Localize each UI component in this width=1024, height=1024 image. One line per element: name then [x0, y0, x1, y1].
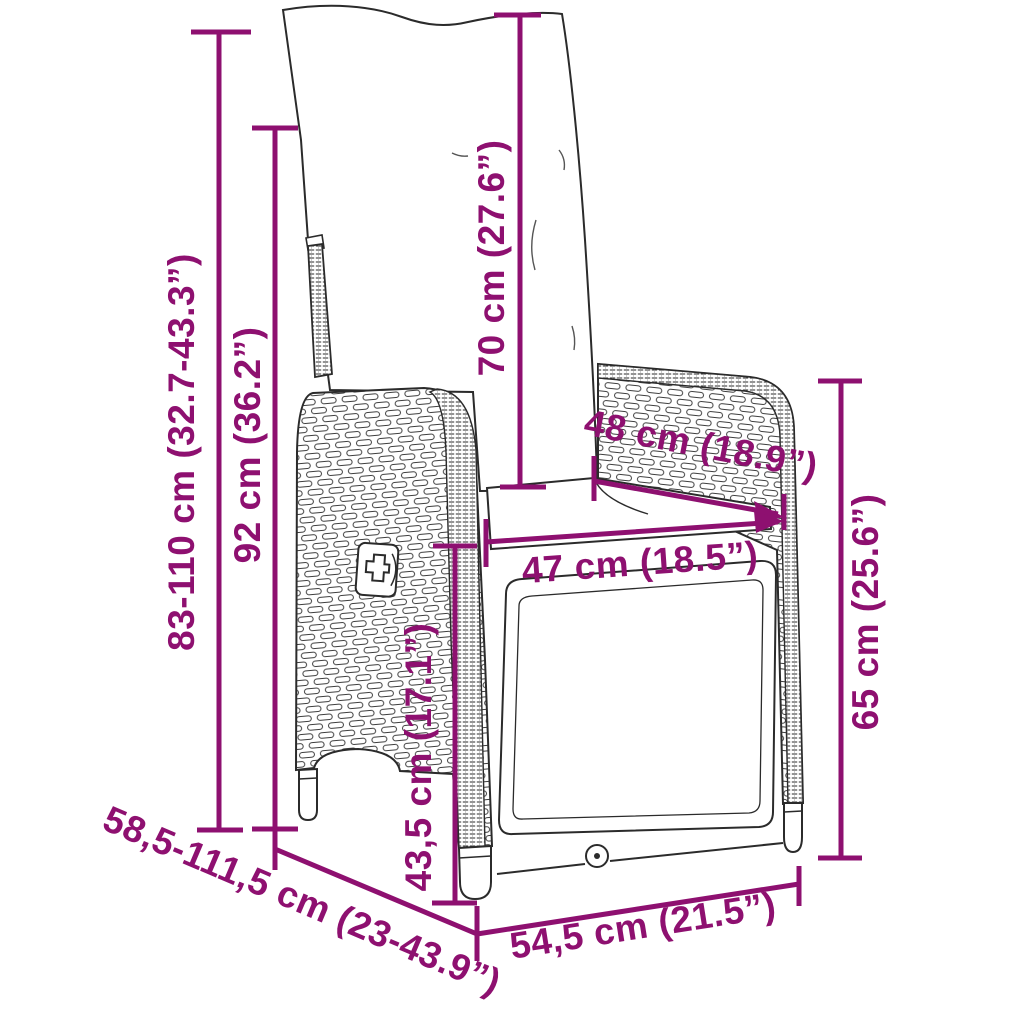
recline-handle: [355, 542, 399, 597]
dim-label-height-range: 83-110 cm (32.7-43.3”): [161, 253, 203, 651]
dim-label-armrest-height: 65 cm (25.6”): [845, 494, 887, 731]
dim-label-cushion-height: 70 cm (27.6”): [471, 140, 513, 377]
dimension-diagram: 83-110 cm (32.7-43.3”) 92 cm (36.2”) 70 …: [0, 0, 1024, 1024]
front-apron: [497, 561, 783, 874]
left-side-panel: [296, 388, 492, 848]
caster-hub: [594, 853, 600, 859]
base-rail: [497, 843, 783, 874]
dim-label-backrest-height: 92 cm (36.2”): [227, 327, 269, 564]
dim-label-seat-height: 43,5 cm (17.1”): [398, 623, 440, 892]
